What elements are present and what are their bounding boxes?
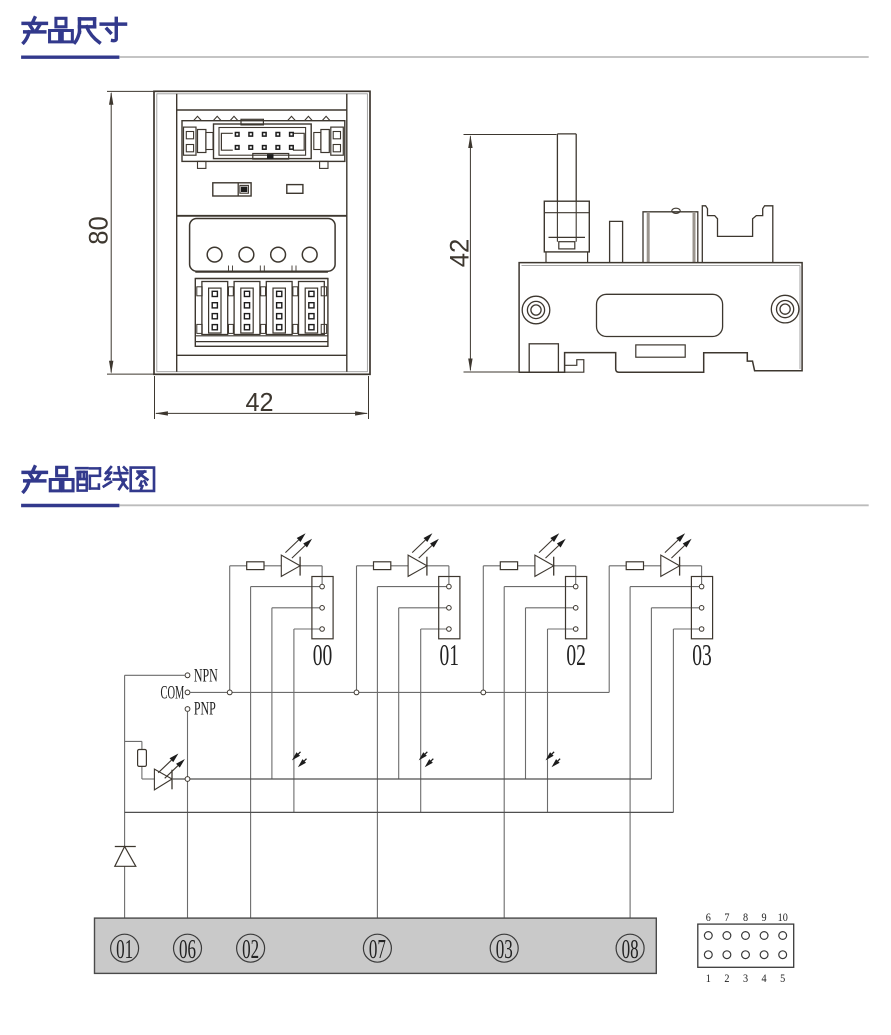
svg-text:42: 42 [245,388,273,416]
svg-text:3: 3 [743,972,748,985]
svg-text:03: 03 [496,934,513,964]
svg-text:42: 42 [444,239,475,268]
svg-text:2: 2 [724,972,729,985]
svg-text:80: 80 [83,216,114,245]
svg-text:6: 6 [706,911,711,924]
svg-text:9: 9 [762,911,767,924]
svg-text:8: 8 [743,911,748,924]
svg-text:10: 10 [778,911,789,924]
svg-text:08: 08 [622,934,639,964]
svg-text:COM: COM [160,682,184,703]
svg-text:PNP: PNP [194,699,216,719]
svg-text:5: 5 [780,972,785,985]
svg-text:1: 1 [706,972,711,985]
svg-text:NPN: NPN [194,666,218,686]
svg-text:00: 00 [313,637,333,672]
svg-text:4: 4 [762,972,767,985]
svg-text:01: 01 [116,934,133,964]
svg-text:7: 7 [724,911,729,924]
svg-text:02: 02 [242,934,259,964]
svg-text:03: 03 [692,637,712,672]
svg-text:07: 07 [369,934,386,964]
svg-text:06: 06 [179,934,196,964]
svg-text:02: 02 [566,637,586,672]
svg-text:01: 01 [440,637,460,672]
